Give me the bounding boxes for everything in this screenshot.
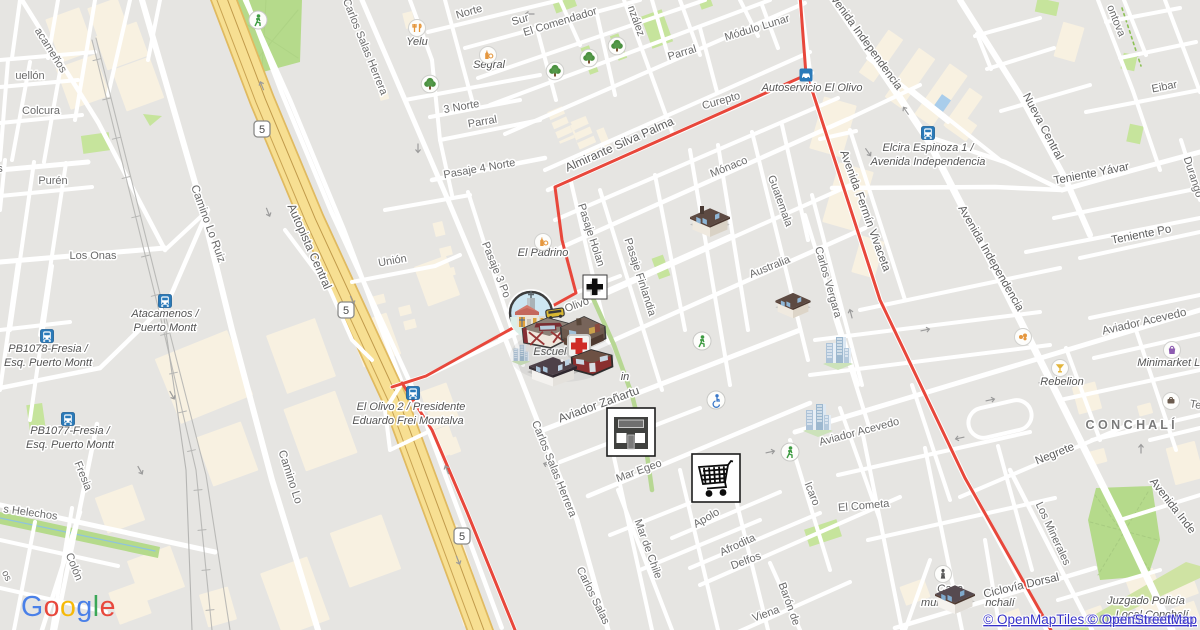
svg-text:Puerto Montt: Puerto Montt (134, 322, 198, 334)
svg-text:C O N C H A L Í: C O N C H A L Í (1085, 417, 1175, 432)
svg-text:Purén: Purén (38, 175, 67, 187)
svg-text:Eduardo Frei Montalva: Eduardo Frei Montalva (352, 415, 463, 427)
svg-text:Los Onas: Los Onas (69, 250, 117, 262)
svg-text:nchalí: nchalí (985, 597, 1015, 609)
svg-text:Google: Google (21, 591, 116, 623)
svg-text:PB1077-Fresia /: PB1077-Fresia / (30, 425, 110, 437)
svg-text:© OpenStreetMap: © OpenStreetMap (1085, 612, 1194, 627)
svg-text:Esq. Puerto Montt: Esq. Puerto Montt (26, 439, 115, 451)
svg-text:Elcira Espinoza 1 /: Elcira Espinoza 1 / (882, 142, 974, 154)
svg-text:5: 5 (259, 124, 265, 136)
svg-text:PB1078-Fresia /: PB1078-Fresia / (8, 343, 88, 355)
svg-text:Esq. Puerto Montt: Esq. Puerto Montt (4, 357, 93, 369)
svg-text:Minimarket Li: Minimarket Li (1137, 357, 1200, 369)
svg-text:Avenida Independencia: Avenida Independencia (870, 156, 986, 168)
svg-text:Colcura: Colcura (22, 105, 61, 117)
svg-text:Autoservicio El Olivo: Autoservicio El Olivo (761, 82, 863, 94)
svg-text:Juzgado Policía: Juzgado Policía (1106, 595, 1185, 607)
svg-text:Rebelion: Rebelion (1040, 376, 1083, 388)
svg-text:Yelu: Yelu (406, 36, 427, 48)
svg-text:5: 5 (343, 305, 349, 317)
svg-text:5: 5 (459, 531, 465, 543)
svg-text:El Olivo 2 / Presidente: El Olivo 2 / Presidente (357, 401, 466, 413)
svg-text:in: in (621, 371, 630, 383)
svg-text:Te: Te (1189, 398, 1200, 412)
svg-text:uellón: uellón (15, 70, 44, 82)
svg-text:Atacamenos /: Atacamenos / (130, 308, 199, 320)
